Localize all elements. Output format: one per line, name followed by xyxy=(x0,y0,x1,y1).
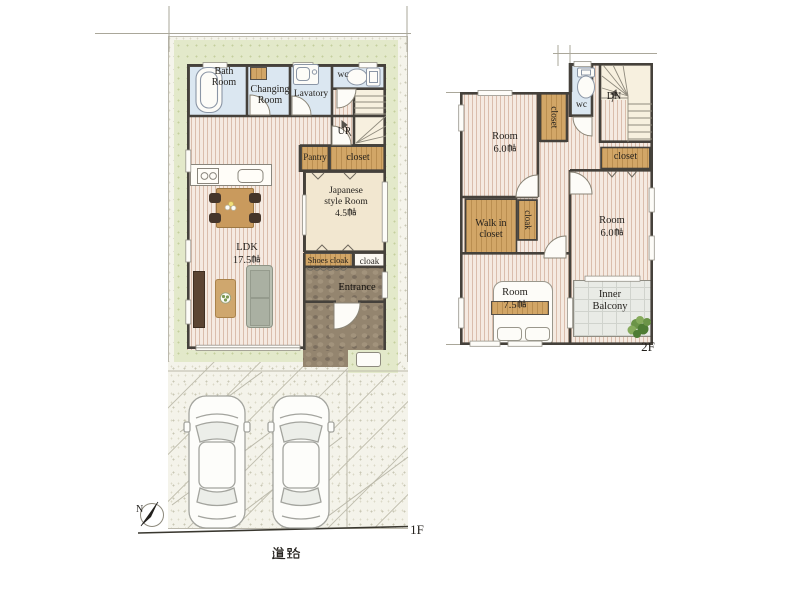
changing-cabinet xyxy=(250,67,267,80)
bath-room-label: Bath Room xyxy=(204,66,244,88)
dining-chair xyxy=(249,213,261,223)
entrance-apron xyxy=(303,350,348,367)
floor-plan-canvas: N Bath Room Changing Room Lavatory wc UP… xyxy=(0,0,800,600)
road-label: 道路 xyxy=(268,546,304,566)
tv-board xyxy=(193,271,205,328)
parking-area xyxy=(168,362,408,528)
coffee-table xyxy=(215,279,236,318)
lavatory-label: Lavatory xyxy=(286,89,336,100)
japanese-room-label: Japanese style Room 4.5帖 xyxy=(322,186,370,220)
pantry-label: Pantry xyxy=(300,152,330,162)
entrance-fill xyxy=(304,268,385,350)
north-arrow-icon: N xyxy=(136,502,164,527)
room-nw-label: Room 6.0帖 xyxy=(478,131,532,156)
porch-step xyxy=(356,352,381,367)
dining-chair xyxy=(209,213,221,223)
dining-chair xyxy=(209,193,221,203)
ldk-label: LDK 17.5帖 xyxy=(224,242,270,267)
compass-n-label: N xyxy=(136,504,143,515)
dou-kanji-glyph xyxy=(271,546,286,561)
stairs-dn-label: DN xyxy=(601,91,627,102)
jou-unit-glyph xyxy=(507,143,517,153)
wc1-label: wc xyxy=(332,70,354,81)
closet2-nw-label: closet xyxy=(548,100,559,134)
inner-balcony-label: Inner Balcony xyxy=(582,289,638,313)
ro-kanji-glyph xyxy=(286,546,301,561)
closet1-label: closet xyxy=(332,152,384,163)
floor1-tag: 1F xyxy=(404,523,430,538)
walk-in-closet-label: Walk in closet xyxy=(463,218,519,240)
wc2-label: wc xyxy=(571,100,592,111)
jou-unit-glyph xyxy=(614,227,624,237)
sofa-cushion xyxy=(250,270,270,298)
room-e-label: Room 6.0帖 xyxy=(585,215,639,240)
stairs-up-label: UP xyxy=(333,126,355,137)
jou-unit-glyph xyxy=(347,207,357,217)
bed-pillow xyxy=(497,327,522,341)
jou-unit-glyph xyxy=(251,254,261,264)
sofa-cushion xyxy=(250,298,270,326)
room-sw-label: Room 7.5帖 xyxy=(488,287,542,312)
cloak1-label: cloak xyxy=(353,256,386,266)
closet2-e-label: closet xyxy=(601,151,650,162)
bed-pillow xyxy=(525,327,550,341)
shoes-cloak-label: Shoes cloak xyxy=(303,256,353,266)
cloak2-label: cloak xyxy=(523,202,533,238)
kitchen-counter xyxy=(190,164,272,186)
floor2-tag: 2F xyxy=(634,340,662,355)
jou-unit-glyph xyxy=(517,299,527,309)
dining-chair xyxy=(249,193,261,203)
entrance-label: Entrance xyxy=(328,282,386,294)
hall2-fill xyxy=(601,100,626,142)
sofa xyxy=(246,265,273,328)
stairs1-fill xyxy=(354,89,386,145)
